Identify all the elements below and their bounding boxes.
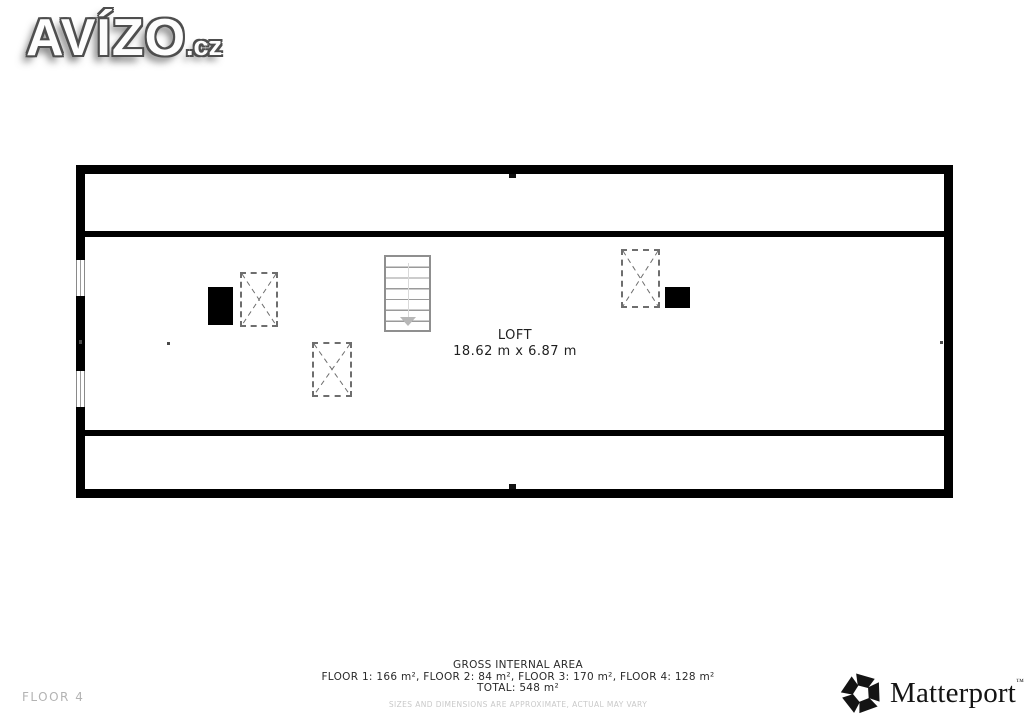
roof-window-dashed-box (621, 249, 660, 308)
section-tick-top (509, 174, 516, 178)
staircase (384, 255, 431, 332)
stairs-direction-shaft (408, 263, 409, 317)
room-dimensions: 18.62 m x 6.87 m (415, 344, 615, 359)
window-left-lower (76, 371, 85, 407)
disclaimer-text: SIZES AND DIMENSIONS ARE APPROXIMATE, AC… (262, 700, 774, 709)
matterport-wordmark: Matterport™ (890, 677, 1024, 710)
trademark-symbol: ™ (1016, 677, 1024, 686)
window-left-upper (76, 260, 85, 296)
roof-window-dashed-box (312, 342, 352, 397)
room-name: LOFT (415, 328, 615, 343)
interior-wall-bottom (85, 430, 944, 436)
avizo-brand-text: AVÍZO (26, 9, 186, 67)
section-tick-bottom (509, 484, 516, 489)
avizo-watermark-logo: AVÍZO.cz (26, 12, 222, 64)
wall-mark (940, 341, 943, 344)
room-label: LOFT 18.62 m x 6.87 m (415, 328, 615, 359)
floor-indicator: FLOOR 4 (22, 690, 84, 704)
area-title: GROSS INTERNAL AREA (262, 660, 774, 672)
stairs-down-arrow-icon (400, 317, 416, 326)
window-pane-line (80, 371, 81, 407)
floor-mark (167, 342, 170, 345)
avizo-tld-text: .cz (186, 31, 222, 61)
gross-internal-area-block: GROSS INTERNAL AREA FLOOR 1: 166 m², FLO… (262, 660, 774, 709)
roof-window-dashed-box (240, 272, 278, 327)
area-total: TOTAL: 548 m² (262, 683, 774, 695)
matterport-logo: Matterport™ (838, 670, 1024, 717)
window-pane-line (80, 260, 81, 296)
wall-mark (79, 340, 82, 344)
floorplan-outline: LOFT 18.62 m x 6.87 m (76, 165, 953, 498)
matterport-pinwheel-icon (838, 670, 885, 717)
floorplan-page: AVÍZO.cz (0, 0, 1024, 724)
chimney-block-left (208, 287, 233, 325)
interior-wall-top (85, 231, 944, 237)
chimney-block-right (665, 287, 690, 308)
